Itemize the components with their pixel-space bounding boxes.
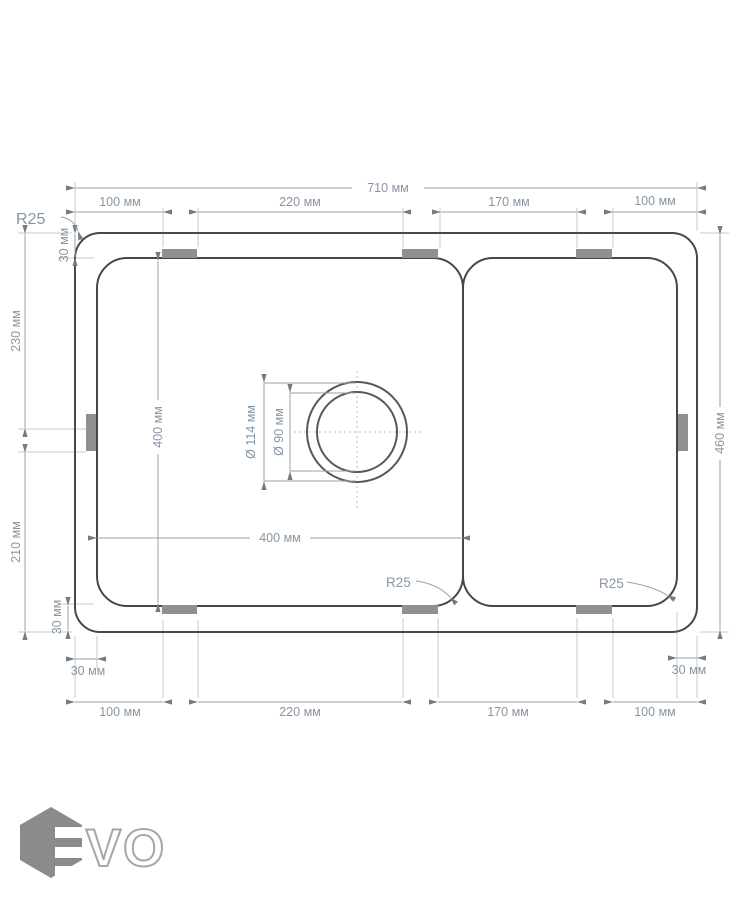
- dim-left-30-bottom: 30 мм: [50, 600, 64, 635]
- dim-top-100-left: 100 мм: [99, 195, 141, 209]
- dim-bowl-height: 400 мм: [151, 406, 165, 448]
- mounting-tab: [576, 249, 612, 258]
- dim-drain-inner-diameter: Ø 90 мм: [272, 408, 286, 456]
- radius-label-top-left: R25: [16, 211, 45, 228]
- dim-right-height: 460 мм: [713, 412, 727, 454]
- radius-label-drainboard: R25: [599, 576, 624, 591]
- dim-top-220: 220 мм: [279, 195, 321, 209]
- evo-logo: VO: [20, 807, 166, 878]
- dim-top-170: 170 мм: [488, 195, 530, 209]
- dim-left-210: 210 мм: [9, 521, 23, 563]
- dim-overall-width: 710 мм: [367, 181, 409, 195]
- dim-bottom-100-right: 100 мм: [634, 705, 676, 719]
- mounting-tab: [402, 249, 438, 258]
- radius-label-bowl: R25: [386, 575, 411, 590]
- dimension-annotations: 710 мм 100 мм 220 мм 170 мм 100 мм 30 мм…: [9, 181, 727, 719]
- mounting-tab: [678, 414, 688, 451]
- dim-left-30-top: 30 мм: [57, 228, 71, 263]
- mounting-tab: [86, 414, 96, 451]
- drain-hole: [294, 371, 421, 509]
- dim-bottom-30-left: 30 мм: [71, 664, 106, 678]
- dim-drain-outer-diameter: Ø 114 мм: [244, 405, 258, 459]
- dim-left-230: 230 мм: [9, 310, 23, 352]
- drainboard-outline: [463, 258, 677, 606]
- dim-bowl-width: 400 мм: [259, 531, 301, 545]
- mounting-tab: [402, 605, 438, 614]
- sink-technical-drawing-page: 710 мм 100 мм 220 мм 170 мм 100 мм 30 мм…: [0, 0, 738, 900]
- mounting-tabs: [86, 249, 688, 614]
- dim-bottom-100-left: 100 мм: [99, 705, 141, 719]
- logo-e-bars: [55, 827, 87, 877]
- extension-lines: [18, 182, 729, 698]
- dim-top-100-right: 100 мм: [634, 194, 676, 208]
- dim-bottom-30-right: 30 мм: [672, 663, 707, 677]
- mounting-tab: [162, 605, 197, 614]
- mounting-tab: [576, 605, 612, 614]
- logo-text: VO: [86, 819, 167, 878]
- sink-dimension-drawing: 710 мм 100 мм 220 мм 170 мм 100 мм 30 мм…: [0, 0, 738, 900]
- dim-bottom-170: 170 мм: [487, 705, 529, 719]
- dim-bottom-220: 220 мм: [279, 705, 321, 719]
- mounting-tab: [162, 249, 197, 258]
